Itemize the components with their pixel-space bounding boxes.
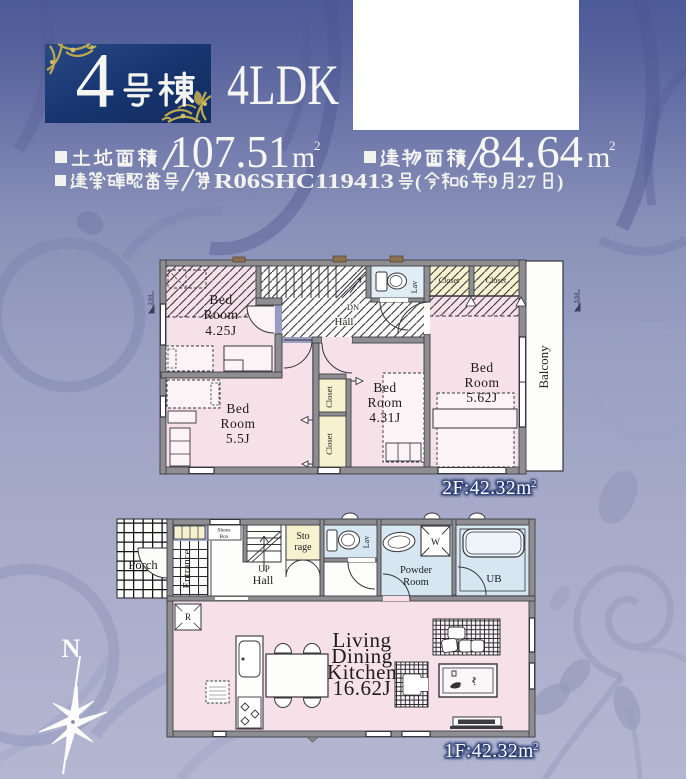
svg-text:Bed: Bed: [209, 292, 232, 307]
svg-text:Bed: Bed: [373, 380, 396, 395]
svg-text:Hall: Hall: [335, 316, 354, 328]
svg-text:N: N: [62, 634, 81, 663]
svg-text:2: 2: [609, 138, 616, 153]
svg-text:Bed: Bed: [226, 401, 249, 416]
svg-text:9: 9: [488, 172, 498, 193]
svg-text:4.31J: 4.31J: [369, 410, 400, 425]
svg-text:Room: Room: [464, 375, 499, 390]
svg-text:Lav: Lav: [362, 536, 371, 548]
svg-text:Box: Box: [219, 534, 228, 540]
svg-text:2F:42.32m: 2F:42.32m: [442, 478, 532, 499]
svg-text:27: 27: [517, 172, 537, 193]
svg-text:Closet: Closet: [324, 433, 334, 455]
svg-text:2: 2: [314, 138, 321, 153]
svg-text:84.64: 84.64: [478, 126, 583, 177]
svg-text:Bed: Bed: [470, 360, 493, 375]
svg-text:Shoes: Shoes: [217, 528, 230, 534]
svg-text:Entrance: Entrance: [181, 549, 193, 588]
svg-text:2: 2: [531, 478, 537, 490]
svg-text:1F:42.32m: 1F:42.32m: [444, 741, 534, 762]
svg-text:3.64: 3.64: [148, 295, 154, 306]
svg-text:5.5J: 5.5J: [226, 431, 250, 446]
svg-text:6: 6: [459, 172, 469, 193]
svg-text:W: W: [431, 538, 440, 548]
svg-text:Hall: Hall: [253, 573, 274, 587]
svg-text:4: 4: [76, 37, 115, 124]
svg-text:Closet: Closet: [324, 386, 334, 408]
svg-text:m: m: [587, 141, 610, 174]
svg-text:R06SHC119413: R06SHC119413: [214, 169, 394, 193]
svg-text:Balcony: Balcony: [536, 345, 551, 389]
svg-text:R: R: [185, 612, 191, 622]
svg-text:Room: Room: [203, 307, 238, 322]
svg-text:Closet: Closet: [486, 276, 507, 285]
svg-text:(: (: [415, 172, 421, 193]
svg-text:Powder: Powder: [400, 565, 433, 576]
svg-text:DN: DN: [347, 302, 359, 312]
svg-text:Room: Room: [367, 395, 402, 410]
svg-text:5.62J: 5.62J: [466, 390, 497, 405]
svg-text:3.64: 3.64: [574, 293, 580, 304]
svg-text:4.25J: 4.25J: [205, 323, 236, 338]
svg-text:UB: UB: [486, 573, 501, 585]
svg-text:2: 2: [533, 741, 539, 753]
svg-text:Room: Room: [403, 577, 429, 588]
svg-text:): ): [557, 172, 563, 193]
svg-text:Porch: Porch: [128, 558, 158, 572]
svg-text:Lav: Lav: [410, 281, 419, 293]
svg-text:Sto: Sto: [296, 531, 309, 542]
svg-text:rage: rage: [294, 542, 312, 553]
svg-text:4LDK: 4LDK: [227, 54, 339, 117]
svg-text:Room: Room: [220, 416, 255, 431]
svg-text:16.62J: 16.62J: [333, 676, 391, 700]
svg-text:Closet: Closet: [439, 276, 460, 285]
